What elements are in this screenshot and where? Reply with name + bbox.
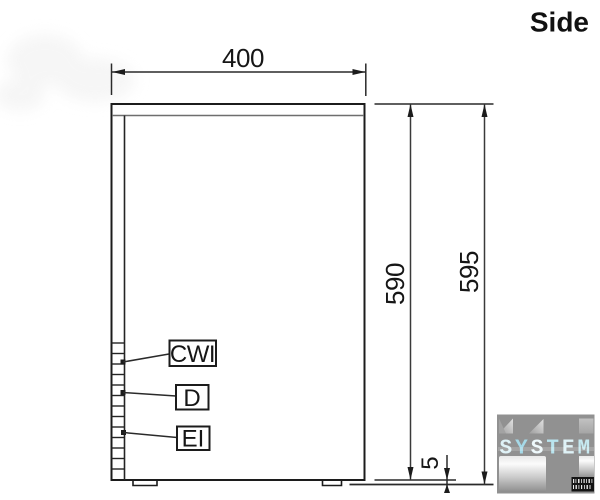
svg-text:D: D [183, 385, 200, 412]
svg-text:590: 590 [380, 263, 410, 305]
svg-text:5: 5 [417, 456, 444, 469]
svg-text:400: 400 [222, 43, 264, 73]
svg-text:EI: EI [182, 426, 205, 453]
svg-text:CWI: CWI [170, 341, 215, 368]
svg-text:595: 595 [454, 251, 484, 293]
svg-text:Side: Side [530, 7, 589, 38]
